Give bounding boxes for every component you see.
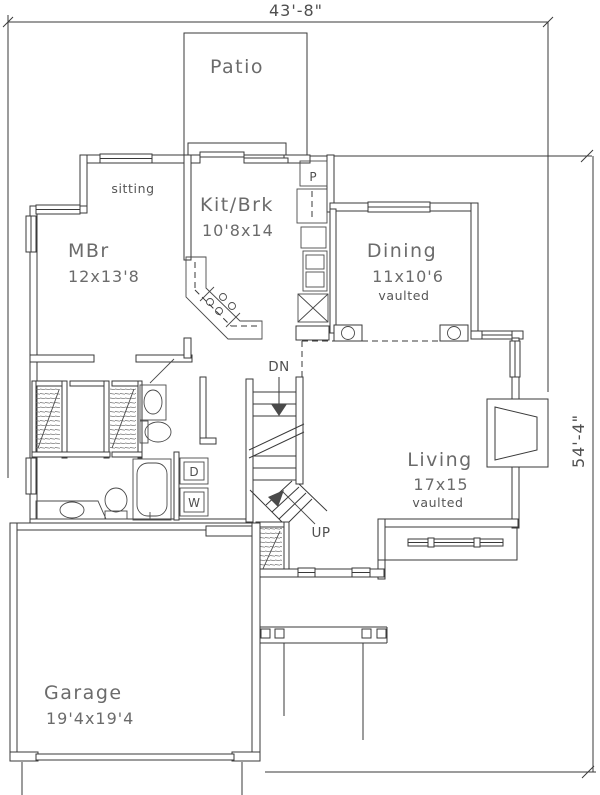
porch-column — [261, 629, 270, 638]
garage-door — [36, 754, 234, 760]
floor-plan-drawing: 43'-8" 54'-4" Patio — [0, 0, 600, 795]
porch-column — [362, 629, 371, 638]
master-label: MBr — [68, 240, 110, 262]
stairs-up-label: UP — [311, 525, 330, 541]
laundry: D W — [174, 452, 208, 520]
fireplace — [487, 399, 548, 467]
porch-column — [377, 629, 386, 638]
driveway — [22, 762, 242, 795]
living-note: vaulted — [412, 495, 463, 510]
entry-porch — [256, 522, 387, 740]
dining-label: Dining — [367, 240, 437, 262]
toilet — [145, 422, 171, 442]
kitchen-size: 10'8x14 — [202, 221, 274, 240]
patio-label: Patio — [210, 56, 264, 78]
sink-2 — [60, 502, 84, 518]
appliance-column: P — [297, 161, 328, 322]
closets — [32, 381, 142, 458]
up-arrow — [268, 490, 284, 507]
kitchen-label: Kit/Brk — [200, 194, 274, 216]
toilet-2 — [105, 488, 127, 512]
master-size: 12x13'8 — [68, 267, 140, 286]
dimension-width: 43'-8" — [269, 1, 323, 20]
porch-column — [275, 629, 284, 638]
patio: Patio — [184, 33, 307, 155]
living-label: Living — [407, 449, 473, 471]
vanity-2 — [36, 501, 106, 519]
garage-label: Garage — [44, 682, 123, 704]
walkway — [284, 643, 363, 740]
dryer-label: D — [189, 465, 198, 479]
dining-size: 11x10'6 — [372, 267, 444, 286]
kitchen-counter — [186, 257, 262, 339]
down-arrow — [271, 404, 287, 416]
wall-oven — [303, 251, 327, 291]
dimension-height: 54'-4" — [569, 414, 588, 468]
pantry-label: P — [309, 170, 316, 184]
sink — [144, 390, 162, 414]
garage — [10, 523, 260, 795]
sliding-door — [200, 152, 244, 157]
living-size: 17x15 — [413, 475, 468, 494]
bay-window — [378, 527, 517, 560]
stairs-down-label: DN — [268, 359, 290, 375]
door-swing — [150, 359, 174, 383]
dining-note: vaulted — [378, 288, 429, 303]
washer-label: W — [188, 496, 200, 510]
floor-plan: 43'-8" 54'-4" Patio — [0, 0, 600, 795]
garage-size: 19'4x19'4 — [46, 709, 134, 728]
dining-columns — [334, 325, 468, 341]
stairs: DN UP — [246, 341, 468, 541]
garage-entry-step — [206, 526, 252, 536]
sitting-label: sitting — [111, 181, 154, 196]
